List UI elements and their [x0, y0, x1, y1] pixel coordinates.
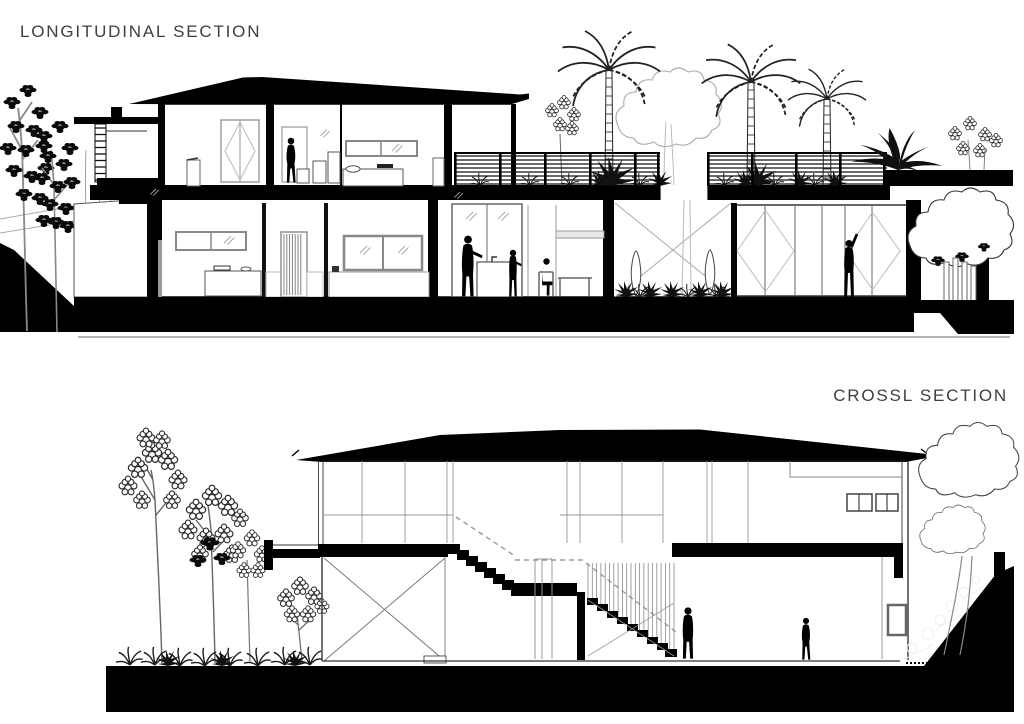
- cross-section-drawing: [106, 423, 1019, 713]
- sections-canvas: [0, 0, 1024, 724]
- courtyard-garden: [614, 200, 734, 297]
- architectural-drawing-page: LONGITUDINAL SECTION CROSSL SECTION: [0, 0, 1024, 724]
- person-silhouette: [802, 618, 810, 660]
- upper-mullions: [362, 461, 748, 543]
- tree-right: [908, 188, 1014, 312]
- stair-upper-run: [448, 544, 514, 590]
- terrace-railing: [454, 152, 887, 186]
- person-silhouette: [509, 250, 521, 297]
- upper-floor-interior: [187, 120, 444, 186]
- terrace-garden: [454, 31, 1002, 186]
- roof: [296, 430, 927, 463]
- roof: [129, 77, 529, 105]
- longitudinal-section-drawing: [0, 31, 1014, 337]
- person-silhouette: [542, 258, 553, 295]
- ground-longitudinal: [74, 297, 1014, 337]
- person-silhouette: [683, 607, 693, 658]
- folding-glass-doors: [731, 200, 921, 312]
- trees-left-line: [116, 428, 329, 666]
